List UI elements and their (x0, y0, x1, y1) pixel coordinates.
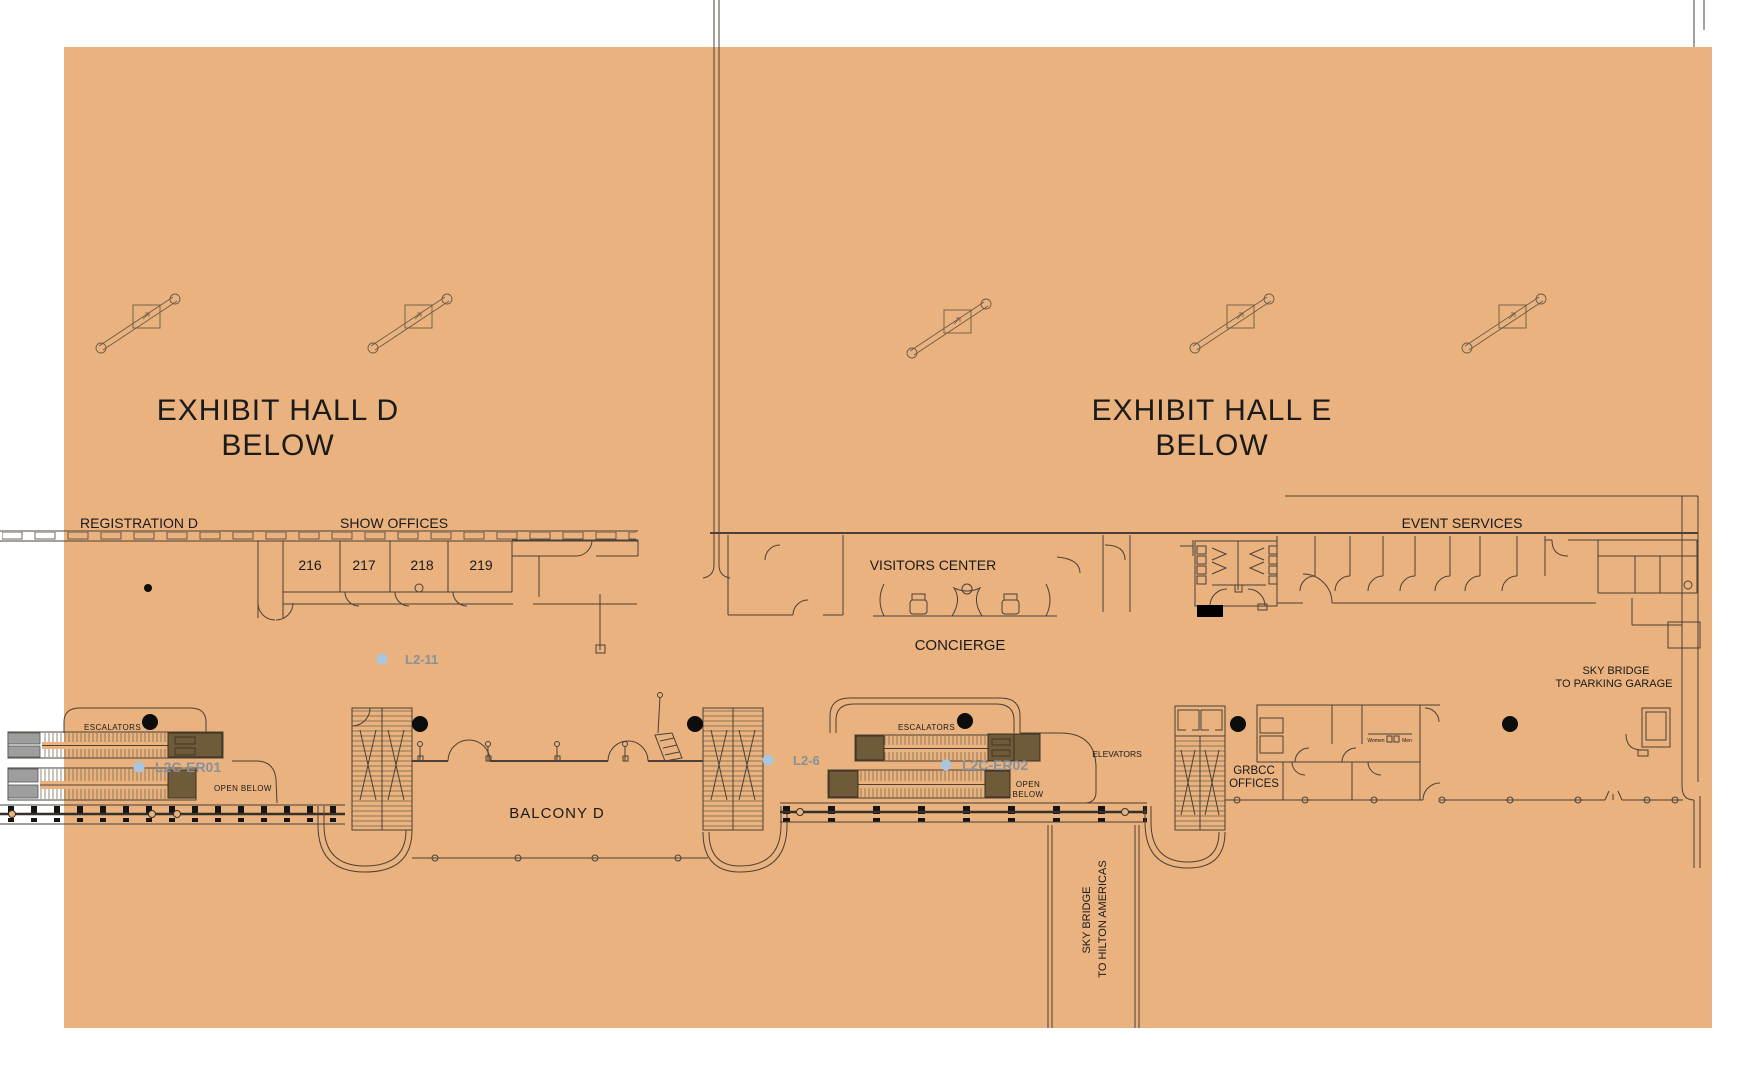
balcony-railing-west (0, 805, 345, 824)
label-room-218: 218 (410, 557, 434, 573)
label-concierge: CONCIERGE (915, 637, 1006, 654)
label-exhibit-hall-d-below: BELOW (221, 429, 334, 462)
location-dot (957, 713, 973, 729)
device-dot-l2-11 (377, 654, 388, 665)
location-dot (142, 714, 158, 730)
label-device-l2-11: L2-11 (405, 652, 438, 667)
label-open-below2-line1: OPEN (1016, 780, 1040, 789)
label-event-services: EVENT SERVICES (1402, 515, 1523, 531)
device-dot-l2c-er02 (941, 760, 952, 771)
device-dot-l2-6 (763, 755, 774, 766)
label-open-below-west: OPEN BELOW (214, 784, 272, 793)
label-show-offices: SHOW OFFICES (340, 515, 448, 531)
floor-plan-drawing: EXHIBIT HALL D BELOW EXHIBIT HALL E BELO… (0, 0, 1740, 1074)
label-device-l2c-er02: L2C-ER02 (962, 757, 1028, 773)
label-device-l2-6: L2-6 (793, 753, 820, 768)
label-grbcc-offices: OFFICES (1229, 778, 1279, 790)
label-registration-d: REGISTRATION D (80, 515, 198, 531)
label-women: Women (1367, 738, 1384, 744)
solid-service-block (1197, 605, 1223, 617)
device-dot-l2c-er01 (134, 762, 145, 773)
location-dot (1230, 716, 1246, 732)
label-skybridge-hilton-line1: SKY BRIDGE (1081, 886, 1093, 953)
label-escalators-center: ESCALATORS (898, 723, 955, 732)
location-dot (412, 716, 428, 732)
escalator-cap-gray (8, 733, 40, 744)
label-skybridge-parking-line2: TO PARKING GARAGE (1556, 678, 1673, 690)
label-room-216: 216 (298, 557, 322, 573)
label-room-219: 219 (469, 557, 493, 573)
label-room-217: 217 (352, 557, 376, 573)
location-dot (687, 716, 703, 732)
label-open-below2-line2: BELOW (1013, 790, 1044, 799)
label-exhibit-hall-e: EXHIBIT HALL E (1092, 394, 1333, 427)
label-device-l2c-er01: L2C-ER01 (155, 759, 221, 775)
label-visitors-center: VISITORS CENTER (870, 557, 997, 573)
floor-plan: EXHIBIT HALL D BELOW EXHIBIT HALL E BELO… (0, 0, 1740, 1074)
label-men: Men (1402, 738, 1412, 744)
label-skybridge-parking-line1: SKY BRIDGE (1582, 665, 1649, 677)
location-dot (1502, 716, 1518, 732)
label-balcony-d: BALCONY D (509, 805, 604, 822)
label-elevators: ELEVATORS (1092, 749, 1142, 759)
label-exhibit-hall-e-below: BELOW (1155, 429, 1268, 462)
label-skybridge-hilton-line2: TO HILTON AMERICAS (1097, 860, 1109, 977)
top-right-wall (1694, 0, 1704, 47)
label-exhibit-hall-d: EXHIBIT HALL D (157, 394, 399, 427)
label-escalators-west: ESCALATORS (84, 723, 141, 732)
small-location-dot (144, 584, 152, 592)
label-grbcc: GRBCC (1233, 765, 1275, 777)
